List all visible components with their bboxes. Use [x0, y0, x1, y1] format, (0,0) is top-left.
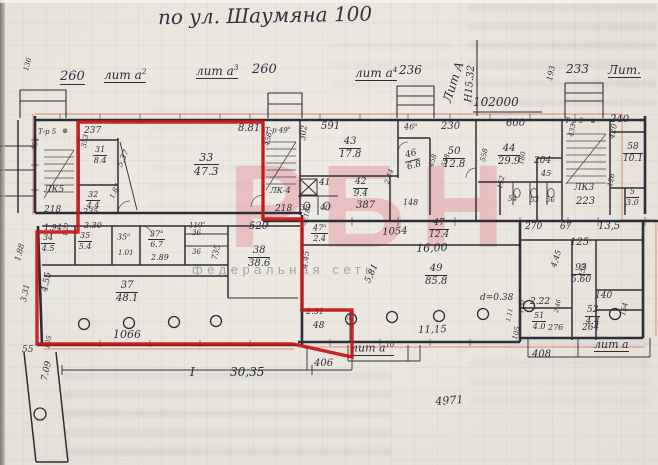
- plan-label: 4,45: [550, 249, 563, 268]
- plan-label: 7.09: [41, 360, 54, 381]
- plan-label: 218: [275, 205, 292, 214]
- plan-label: 454: [31, 137, 41, 152]
- room-number-area: 466.8: [402, 148, 422, 173]
- room-number-area: 935.60: [571, 264, 591, 285]
- plan-label: ⊗: [62, 128, 68, 135]
- plan-label: 735: [211, 244, 222, 261]
- plan-label: 136: [23, 57, 33, 72]
- plan-label: 458: [428, 153, 439, 168]
- room-number: 32: [86, 191, 100, 201]
- room-area: 12.4: [429, 230, 449, 241]
- plan-label: 260: [252, 63, 277, 76]
- plan-label: 4.45: [301, 250, 311, 269]
- plan-label: 193: [546, 65, 557, 82]
- plan-label: 126: [607, 173, 617, 188]
- plan-label: лит а3: [196, 64, 238, 79]
- room-number: 44: [498, 144, 520, 156]
- plan-label: 591: [321, 122, 340, 132]
- plan-label: 154: [620, 302, 630, 317]
- plan-label: 46а: [404, 123, 417, 132]
- plan-label: 600: [506, 119, 525, 129]
- plan-label: Лит А: [441, 60, 465, 104]
- plan-label: 67: [560, 223, 571, 232]
- room-area: 29.9: [498, 156, 520, 168]
- plan-label: 302: [299, 125, 309, 141]
- room-number-area: 324.4: [86, 191, 100, 210]
- plan-label: Т-р 5: [38, 129, 56, 136]
- plan-label: 387: [356, 201, 375, 211]
- room-area: 10.1: [623, 154, 643, 165]
- room-area: 4.4: [86, 201, 100, 211]
- room-area: 12.8: [443, 159, 465, 171]
- plan-label: 53: [530, 197, 539, 204]
- plan-label: 1.50: [347, 313, 355, 327]
- room-area: 2.4: [311, 234, 328, 244]
- plan-label: 204: [534, 157, 551, 166]
- plan-labels-layer: 136260лит а2лит а3260лит а4236Лит АН15.3…: [0, 0, 658, 465]
- plan-label: 1,50: [519, 300, 527, 314]
- plan-label: 276: [548, 324, 563, 332]
- room-number-area: 53.0: [626, 188, 639, 207]
- plan-label: лит а: [594, 339, 629, 352]
- plan-label: 1066: [113, 329, 141, 340]
- plan-label: 233: [566, 63, 589, 75]
- plan-label: 223: [576, 197, 595, 207]
- plan-label: 236: [399, 64, 422, 76]
- plan-label: 406: [314, 359, 333, 369]
- plan-label: 353: [81, 134, 90, 148]
- room-number-area: 355.4: [78, 232, 92, 251]
- plan-label: 11,15: [418, 325, 447, 336]
- plan-label: 45: [541, 170, 551, 178]
- plan-label: лит а2: [104, 68, 146, 83]
- room-number: 49: [425, 264, 447, 276]
- room-number-area: 4429.9: [498, 144, 520, 168]
- room-number: 37а: [148, 230, 165, 240]
- plan-label: 1.01: [118, 250, 134, 257]
- plan-label: 2.22: [530, 298, 550, 307]
- room-number: 47а: [311, 224, 328, 234]
- plan-label: 41: [319, 179, 330, 188]
- plan-label: 520: [249, 222, 268, 232]
- room-area: 4.4: [585, 317, 600, 328]
- plan-label: 2.44: [384, 168, 395, 185]
- plan-label: I: [190, 366, 195, 378]
- plan-label: 148: [403, 199, 418, 207]
- plan-label: 102000: [473, 96, 519, 108]
- plan-label: 2.30: [84, 222, 102, 230]
- plan-label: 48: [313, 322, 324, 331]
- plan-label: 260: [60, 70, 85, 85]
- room-number-area: 514.0: [532, 312, 546, 331]
- room-number-area: 524.4: [585, 306, 600, 327]
- room-area: 85.8: [425, 276, 447, 288]
- room-number: 37: [116, 281, 138, 293]
- plan-label: 270: [525, 223, 542, 232]
- plan-label: 1.87: [109, 183, 122, 200]
- plan-label: 36: [192, 230, 201, 237]
- room-number: 43: [339, 137, 361, 149]
- plan-label: 30,35: [230, 366, 264, 378]
- plan-label: 4971: [435, 394, 464, 407]
- room-number: 31: [93, 146, 107, 156]
- room-number: 51: [532, 312, 546, 322]
- plan-label: 1054: [382, 227, 408, 238]
- plan-label: 54: [508, 196, 517, 203]
- room-number-area: 4317.8: [339, 137, 361, 161]
- plan-label: 5,81: [364, 263, 381, 285]
- plan-label: 230: [441, 122, 460, 132]
- room-number-area: 4712.4: [429, 219, 449, 240]
- room-number: 34: [41, 234, 55, 244]
- room-number-area: 4985.8: [425, 264, 447, 288]
- plan-label: ЛК3: [574, 184, 594, 193]
- room-area: 4.5: [41, 244, 55, 254]
- plan-label: 8.81: [238, 124, 260, 134]
- room-number-area: 3838.6: [248, 246, 270, 270]
- room-number-area: 3748.1: [116, 281, 138, 305]
- plan-label: 2.31: [306, 308, 324, 316]
- plan-label: d=0.38: [480, 294, 513, 303]
- plan-label: 55: [22, 346, 33, 355]
- room-number: 50: [443, 147, 465, 159]
- scanned-floor-plan-page: РБН федеральная сеть: [0, 0, 658, 465]
- scan-edge-top: [0, 0, 658, 3]
- plan-label: 1.18: [302, 208, 312, 225]
- plan-label: 1.11: [506, 308, 515, 322]
- room-area: 38.6: [248, 258, 270, 270]
- plan-label: 458: [264, 132, 274, 147]
- plan-label: 140: [595, 292, 612, 301]
- plan-label: 433: [568, 123, 578, 138]
- plan-label: 1.88: [14, 243, 26, 262]
- plan-label: 558: [480, 148, 490, 163]
- plan-label: лит а10: [351, 342, 394, 356]
- plan-label: ЛК-4: [270, 187, 291, 195]
- room-number-area: 5810.1: [623, 143, 643, 164]
- plan-label: 2,46: [554, 299, 563, 313]
- plan-label: 105: [512, 326, 522, 341]
- plan-label: 125: [570, 238, 589, 248]
- plan-label: 3.31: [20, 284, 32, 303]
- room-area: 17.8: [339, 149, 361, 161]
- room-number-area: 3347.3: [194, 152, 219, 178]
- room-number: 52: [585, 306, 600, 317]
- room-number: 35: [78, 232, 92, 242]
- room-area: 4.0: [532, 322, 546, 332]
- plan-label: 218: [44, 206, 61, 215]
- room-number: 38: [248, 246, 270, 258]
- plan-label: 1.20: [63, 223, 71, 237]
- plan-label: лит а4: [355, 66, 397, 81]
- scan-edge-shadow: [0, 0, 5, 465]
- plan-label: 56: [546, 197, 555, 204]
- plan-label: Лит.: [608, 64, 641, 78]
- room-area: 6.7: [148, 240, 165, 250]
- room-area: 48.1: [116, 293, 138, 305]
- room-area: 8.4: [93, 156, 107, 166]
- room-number-area: 47а2.4: [311, 224, 328, 244]
- room-number: 93: [571, 264, 591, 275]
- room-number-area: 429.4: [353, 178, 368, 199]
- plan-label: 152: [497, 175, 507, 190]
- plan-label: 408: [532, 350, 551, 360]
- plan-label: 5,37: [116, 149, 131, 169]
- room-number: 42: [353, 178, 368, 189]
- room-number-area: 5012.8: [443, 147, 465, 171]
- plan-label: 35а: [117, 233, 130, 242]
- plan-label: 13,5: [598, 222, 620, 232]
- plan-label: 2.89: [151, 254, 169, 262]
- room-number: 58: [623, 143, 643, 154]
- plan-label: 16,00: [416, 242, 448, 254]
- room-number: 47: [429, 219, 449, 230]
- room-number: 5: [626, 188, 639, 198]
- plan-label: 4.55: [41, 271, 54, 292]
- plan-label: 1.94: [44, 224, 62, 232]
- plan-label: 105: [44, 335, 54, 350]
- room-number: 33: [194, 152, 219, 165]
- room-number-area: 318.4: [93, 146, 107, 165]
- plan-label: ЛК5: [44, 186, 64, 195]
- room-number-area: 344.5: [41, 234, 55, 253]
- plan-label: 420: [608, 123, 619, 140]
- room-area: 9.4: [353, 189, 368, 200]
- plan-label: 40: [320, 204, 330, 212]
- plan-label: ⊗: [590, 118, 596, 125]
- plan-label: 36: [192, 249, 201, 256]
- room-area: 5.4: [78, 242, 92, 252]
- room-number-area: 37а6.7: [148, 230, 165, 250]
- room-area: 3.0: [626, 198, 639, 208]
- room-area: 47.3: [194, 165, 219, 178]
- room-area: 5.60: [571, 275, 591, 286]
- page-title: по ул. Шаумяна 100: [158, 1, 418, 30]
